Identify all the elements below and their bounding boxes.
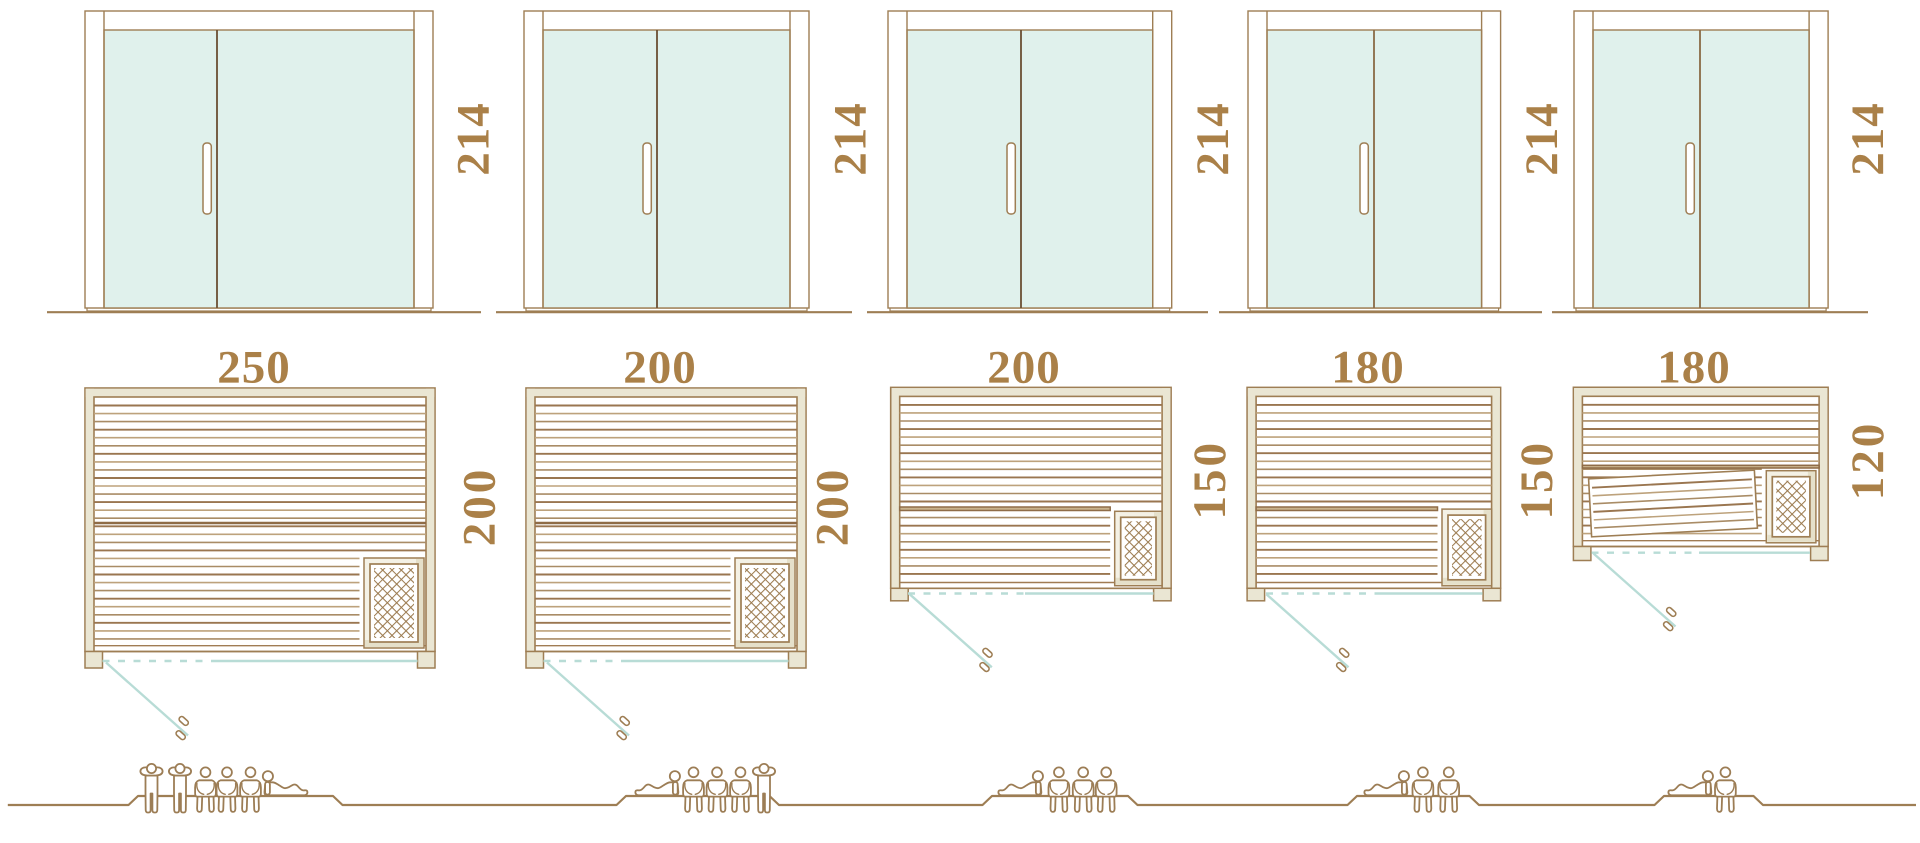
svg-text:180: 180: [1657, 342, 1731, 394]
svg-text:200: 200: [807, 467, 859, 547]
svg-text:150: 150: [1511, 440, 1563, 520]
svg-text:200: 200: [623, 342, 697, 394]
svg-text:214: 214: [1516, 102, 1568, 176]
svg-text:214: 214: [825, 102, 877, 176]
svg-text:250: 250: [217, 342, 291, 394]
svg-text:214: 214: [1187, 102, 1239, 176]
svg-text:120: 120: [1842, 421, 1894, 501]
svg-text:150: 150: [1184, 440, 1236, 520]
svg-text:214: 214: [1842, 102, 1894, 176]
svg-text:200: 200: [454, 467, 506, 547]
svg-text:200: 200: [987, 342, 1061, 394]
svg-text:180: 180: [1331, 342, 1405, 394]
svg-text:214: 214: [447, 102, 499, 176]
